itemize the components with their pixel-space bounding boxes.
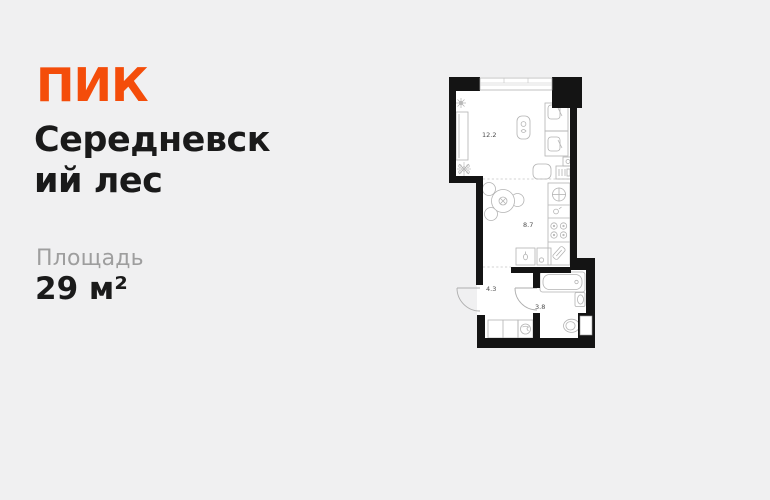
ceiling-light-icon [456,98,466,108]
floor-plan: 12.2 8.7 4.3 3.8 [0,0,770,500]
room-label-hallway: 4.3 [486,285,496,293]
room-label-living: 12.2 [482,131,496,139]
shaft [580,316,592,335]
plant-icon [457,162,471,176]
entrance-door-icon [457,288,480,311]
room-label-kitchen: 8.7 [523,221,533,229]
room-label-bathroom: 3.8 [535,303,545,311]
window-icon [480,78,552,90]
